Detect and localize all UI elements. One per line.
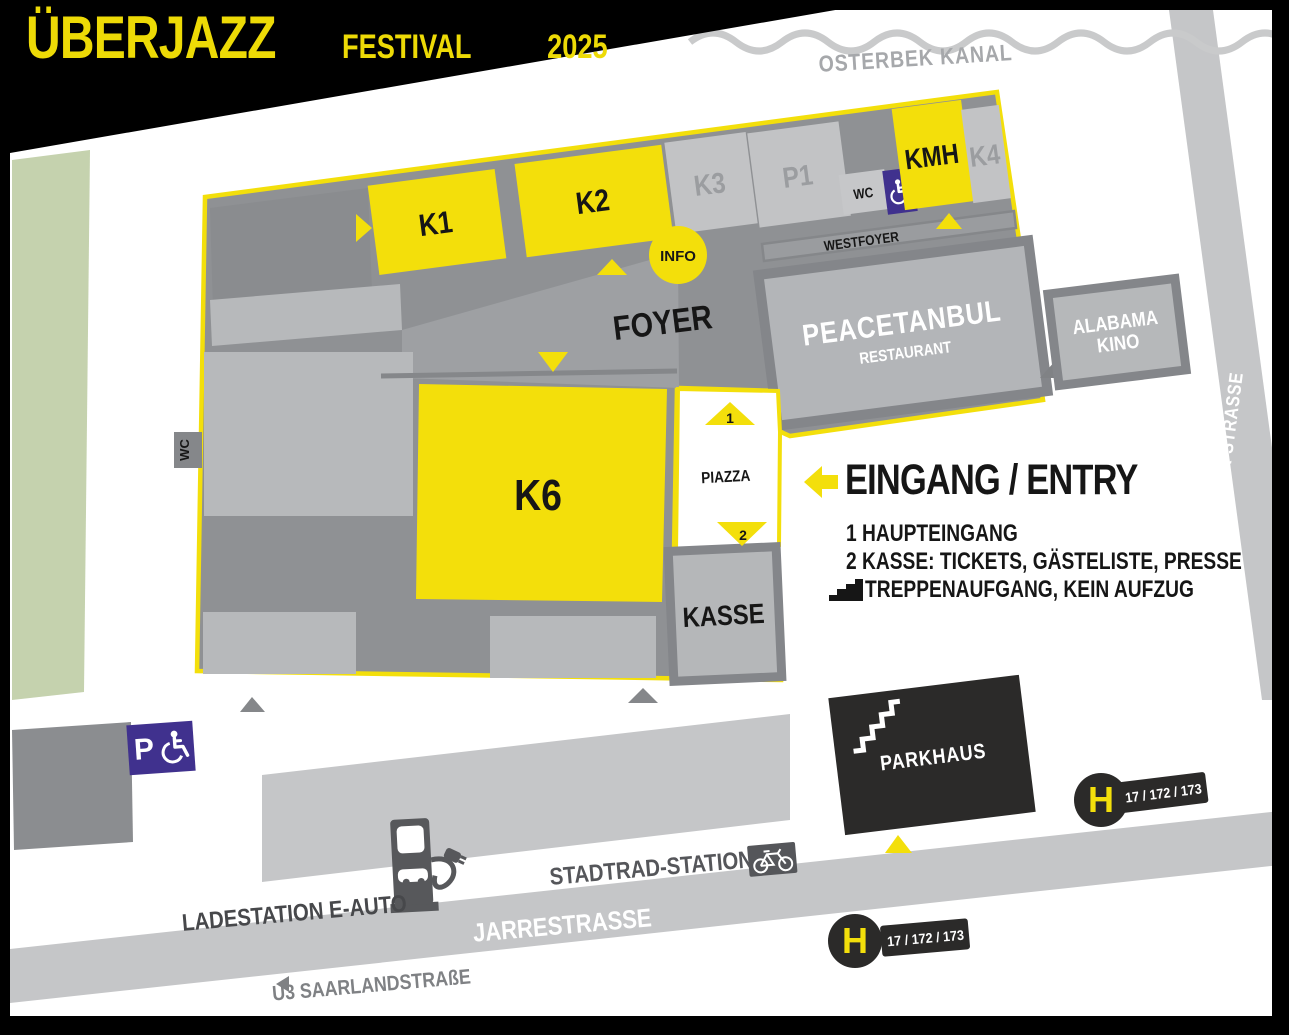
- accessible-parking-sign: P: [126, 721, 195, 775]
- room-p1-label: P1: [781, 158, 815, 194]
- bus-stop-letter: H: [842, 920, 868, 961]
- frame-right: [1272, 0, 1289, 1035]
- info-label: INFO: [660, 248, 696, 265]
- room-k2-label: K2: [574, 183, 612, 222]
- frame-bottom: [0, 1016, 1289, 1035]
- room-k6-label: K6: [514, 470, 562, 520]
- logo-title: ÜBERJAZZ: [26, 8, 276, 68]
- info-point: INFO: [649, 226, 707, 284]
- logo-year: 2025: [548, 28, 609, 67]
- frame-left: [0, 0, 10, 1035]
- marker-1-label: 1: [726, 410, 734, 426]
- parking-letter: P: [133, 733, 155, 767]
- room-k4-label: K4: [968, 137, 1003, 173]
- wc-exterior-sign: WC: [174, 432, 202, 468]
- entry-heading: EINGANG / ENTRY: [845, 456, 1211, 505]
- piazza-label: PIAZZA: [701, 468, 751, 488]
- entry-heading-label: EINGANG / ENTRY: [845, 456, 1138, 505]
- kasse-label: KASSE: [682, 597, 766, 634]
- map-legend: 1 HAUPTEINGANG 2 KASSE: TICKETS, GÄSTELI…: [846, 520, 1289, 604]
- interior-room: [203, 612, 356, 674]
- room-wc-label: WC: [852, 184, 874, 203]
- room-k3-label: K3: [692, 166, 727, 202]
- parking-lot: [12, 722, 133, 850]
- bicycle-icon: [747, 842, 798, 877]
- logo-subtitle: FESTIVAL: [342, 28, 471, 67]
- stairs-icon: [829, 579, 863, 601]
- wc-exterior-label: WC: [177, 439, 192, 461]
- festival-logo: ÜBERJAZZ FESTIVAL 2025: [26, 8, 674, 68]
- marker-2-label: 2: [739, 527, 747, 543]
- legend-item-2: 2 KASSE: TICKETS, GÄSTELISTE, PRESSE: [846, 548, 1242, 576]
- bus-stop-letter: H: [1088, 779, 1114, 820]
- room-k1-label: K1: [417, 205, 455, 244]
- legend-item-3: TREPPENAUFGANG, KEIN AUFZUG: [865, 576, 1194, 604]
- legend-item-1: 1 HAUPTEINGANG: [846, 520, 1018, 548]
- green-area: [12, 150, 90, 700]
- interior-room: [490, 616, 656, 678]
- festival-map: BARMBEKER STRASSE OSTERBEK KANAL JARREST…: [0, 0, 1289, 1035]
- map-canvas: BARMBEKER STRASSE OSTERBEK KANAL JARREST…: [0, 0, 1289, 1035]
